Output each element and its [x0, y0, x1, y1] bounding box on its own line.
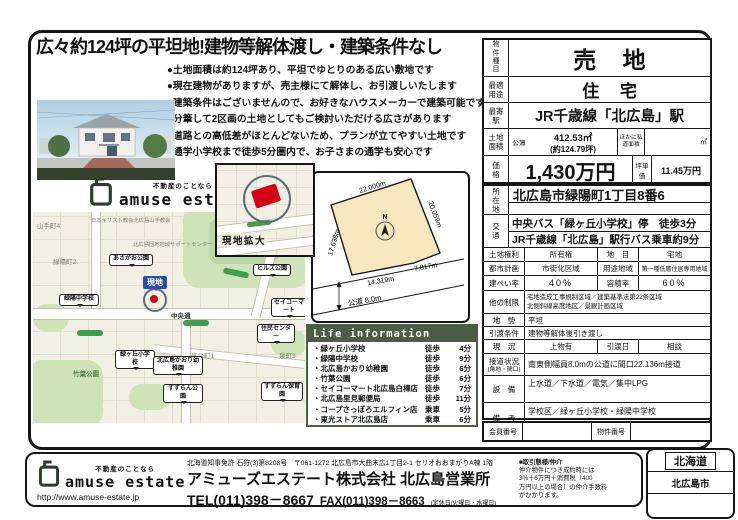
- bullet-item: ●道路との高低差がほとんどないため、プランが立てやすい土地です: [167, 129, 479, 145]
- row-value: 40%: [525, 276, 598, 290]
- row-label: 都市計画: [484, 262, 525, 275]
- amuse-logo-footer: 不動産のことなら amuse estate: [37, 460, 185, 493]
- life-row: ・北広島かおり幼稚園徒歩6分: [313, 364, 471, 374]
- address-line2-empty: [509, 203, 710, 214]
- map-poi-label: 北広島団地地域サポートセンター: [133, 240, 212, 248]
- row-label: 容積率: [598, 276, 639, 290]
- row-label: 建ぺい率: [484, 276, 525, 290]
- row-value: 宅地: [639, 248, 710, 261]
- life-mode: 徒歩: [425, 384, 447, 394]
- row-value: 上水道／下水道／電気／集中LPG: [525, 376, 710, 402]
- life-mode: 徒歩: [425, 394, 447, 404]
- north-label: N: [382, 214, 387, 221]
- holiday-note: (定休日/火曜日・水曜日): [431, 498, 497, 507]
- map-balloon-suzuran-park: すずらん公園: [163, 384, 203, 403]
- area-value: 412.53㎡: [554, 130, 593, 144]
- area-values: 412.53㎡ (約124.79坪): [529, 129, 618, 155]
- life-row: ・緑陽中学校徒歩9分: [313, 354, 471, 364]
- life-time: 6分: [447, 374, 471, 384]
- type-value: 売 地: [509, 40, 710, 76]
- region-pref: 北海道: [665, 452, 716, 470]
- frontage-label: 接道状況: [489, 356, 519, 367]
- row-label: 現 況: [484, 340, 525, 353]
- row-value: 南東側幅員8.0mの公道に間口22.136m接道: [525, 354, 710, 375]
- map-road-chuo: [33, 308, 305, 320]
- life-time: 9分: [447, 354, 471, 364]
- spec-row-address: 所在地 北広島市緑陽町1丁目8番6: [484, 186, 710, 215]
- spec-row-area: 土地面積 公簿 412.53㎡ (約124.79坪) ほかに私道面積 ㎡: [484, 129, 710, 156]
- station-value: JR千歳線「北広島」駅: [509, 103, 710, 128]
- spec-row-access: 交通 中央バス「緑ヶ丘小学校」停 徒歩3分 JR千歳線「北広島」駅行バス乗車約9…: [484, 215, 710, 248]
- dim-left: 17.638m: [327, 228, 342, 256]
- flyer-page: 広々約124坪の平坦地!建物等解体渡し・建築条件なし ●土地面積は約124坪あり…: [0, 0, 738, 520]
- spec-row-type: 物件種目 売 地: [484, 40, 710, 77]
- unit-price-value: 11.45万円: [652, 156, 710, 184]
- row-value: 相談: [639, 340, 710, 353]
- address-value: 北広島市緑陽町1丁目8番6: [509, 186, 710, 203]
- logo-name: amuse estate: [65, 473, 185, 491]
- spec-table-numbers: 会員番号 物件番号: [482, 421, 712, 442]
- logo-url: http://www.amuse-estate.jp: [37, 492, 139, 502]
- spec-label: 最寄駅: [484, 103, 509, 128]
- life-name: ・北広島かおり幼稚園: [313, 364, 425, 374]
- area-other-label: ほかに私道面積: [618, 129, 645, 155]
- headline: 広々約124坪の平坦地!建物等解体渡し・建築条件なし: [36, 33, 482, 59]
- unit-price-label: 坪単価: [632, 156, 652, 184]
- map-balloon-site: 現地: [143, 276, 167, 289]
- property-no-label: 物件番号: [592, 423, 631, 440]
- life-information-rows: ・緑ヶ丘小学校徒歩4分 ・緑陽中学校徒歩9分 ・北広島かおり幼稚園徒歩6分 ・竹…: [308, 342, 476, 425]
- spec-label: 物件種目: [484, 40, 509, 76]
- site-inset-map: 現地拡大: [215, 163, 315, 257]
- row-label: 引渡条件: [484, 327, 525, 339]
- footer-company-block: 北海道知事免許 石狩(3)第8208号 〒061-1272 北広島市大曲末広1丁…: [187, 457, 517, 510]
- map-poi-label: 日本キリスト教会北広島山手教会: [91, 216, 170, 224]
- row-label: 他の制限: [484, 291, 525, 313]
- map-park-label: 竹葉公園: [73, 368, 99, 378]
- life-mode: 徒歩: [425, 344, 447, 354]
- route-badge: [77, 330, 103, 336]
- company-name: アミューズエステート株式会社 北広島営業所: [187, 468, 517, 489]
- use-label: 最適用途: [488, 81, 505, 99]
- life-time: 7分: [447, 384, 471, 394]
- frontage-sublabel: (角地・間口): [488, 367, 521, 374]
- restrictions-values: 宅地造成工事規制区域／建築基準法第22条区域 北側斜線高度地区／景観計画区域: [525, 291, 710, 313]
- license-line: 北海道知事免許 石狩(3)第8208号 〒061-1272 北広島市大曲末広1丁…: [187, 457, 517, 467]
- area-label: 土地面積: [488, 133, 505, 151]
- access-values: 中央バス「緑ヶ丘小学校」停 徒歩3分 JR千歳線「北広島」駅行バス乗車約9分: [509, 215, 710, 247]
- bullet-item: ●土地面積は約124坪あり、平坦でゆとりのある広い敷地です: [167, 63, 479, 79]
- life-mode: 徒歩: [425, 374, 447, 384]
- life-row: ・コープさっぽろエルフィン店乗車5分: [313, 405, 471, 415]
- life-name: ・竹葉公園: [313, 374, 425, 384]
- row-value: 市街化区域: [525, 262, 598, 275]
- property-no-value-empty: [631, 423, 710, 440]
- notice-line: がかかります。: [519, 492, 635, 500]
- row-value: 上物有: [525, 340, 598, 353]
- spec-label: 価格: [484, 156, 509, 184]
- row-label: 引渡日: [598, 340, 639, 353]
- footer-bar: 不動産のことなら amuse estate http://www.amuse-e…: [25, 452, 643, 507]
- life-mode: 乗車: [425, 405, 447, 415]
- area-other-unit: ㎡: [645, 129, 710, 155]
- bullet-item: ●分筆して2区画の土地としてもご検討いただける広さがあります: [167, 112, 479, 128]
- map-balloon-hills-park: ヒルズ公園: [253, 264, 291, 276]
- life-name: ・緑ヶ丘小学校: [313, 344, 425, 354]
- life-row: ・竹葉公園徒歩6分: [313, 374, 471, 384]
- price-label: 価格: [492, 161, 501, 179]
- area-register-label: 公簿: [509, 129, 529, 155]
- region-pref-cell: 北海道: [648, 450, 733, 472]
- row-value: 平坦: [525, 314, 710, 326]
- row-label: 地 勢: [484, 314, 525, 326]
- life-name: ・コープさっぽろエルフィン店: [313, 405, 425, 415]
- row-value: 建物等解体後引き渡し: [525, 327, 710, 339]
- site-marker-dot: [150, 295, 158, 303]
- map-area-label: 泉町3: [279, 350, 296, 360]
- life-time: 5分: [447, 405, 471, 415]
- life-mode: 徒歩: [425, 354, 447, 364]
- spec-row-use: 最適用途 住 宅: [484, 77, 710, 103]
- spec-row-terrain: 地 勢 平坦: [484, 314, 710, 327]
- spec-row-coverage: 建ぺい率 40% 容積率 60%: [484, 276, 710, 291]
- spec-label: 最適用途: [484, 77, 509, 102]
- map-balloon-kaori-kindergarten: 北広島かおり幼稚園: [153, 356, 203, 375]
- property-photo: [37, 100, 175, 180]
- notice-title: ■取引態様/仲介: [519, 459, 635, 467]
- row-value: 60%: [639, 276, 710, 290]
- access-line1: 中央バス「緑ヶ丘小学校」停 徒歩3分: [509, 215, 710, 232]
- fax-number: FAX(011)398－8663: [320, 493, 425, 509]
- row-value: 第一種低層住居専用地域: [639, 262, 710, 275]
- bullet-item: ●現在建物がありますが、売主様にて解体し、お引渡しいたします: [167, 79, 479, 95]
- row-label: 用途地域: [598, 262, 639, 275]
- life-information-box: Life information ・緑ヶ丘小学校徒歩4分 ・緑陽中学校徒歩9分 …: [306, 324, 478, 427]
- life-row: ・北広島里見郵便局徒歩11分: [313, 394, 471, 404]
- dim-bottom-right: 7.817m: [414, 262, 438, 273]
- bullet-list: ●土地面積は約124坪あり、平坦でゆとりのある広い敷地です ●現在建物があります…: [167, 63, 479, 161]
- life-row: ・セイコーマート北広島白樺店徒歩7分: [313, 384, 471, 394]
- spec-row-road-frontage: 接道状況 (角地・間口) 南東側幅員8.0mの公道に間口22.136m接道: [484, 354, 710, 376]
- bullet-item: ●通学小学校まで徒歩5分圏内で、お子さまの通学も安心です: [167, 145, 479, 161]
- map-balloon-suzuran-nursery: すずらん保育園: [261, 382, 303, 401]
- tel-number: TEL(011)398－8667: [187, 490, 314, 510]
- site-plan: N 22.000m 20.059m 17.638m 14.319m 7.817m…: [311, 171, 470, 323]
- life-row: ・緑ヶ丘小学校徒歩4分: [313, 344, 471, 354]
- life-mode: 乗車: [425, 415, 447, 425]
- map-balloon-midorigaoka-es: 緑ヶ丘小学校: [115, 350, 155, 369]
- map-balloon-seicomart: セイコーマート: [271, 298, 305, 317]
- amuse-house-icon: [37, 460, 61, 493]
- life-name: ・緑陽中学校: [313, 354, 425, 364]
- member-no-value-empty: [523, 423, 592, 440]
- life-time: 4分: [447, 344, 471, 354]
- row-label: 設 備: [484, 376, 525, 402]
- logo-tagline: 不動産のことなら: [65, 463, 185, 473]
- access-line2: JR千歳線「北広島」駅行バス乗車約9分: [509, 232, 710, 247]
- spec-label: 所在地: [484, 186, 509, 214]
- brokerage-notice: ■取引態様/仲介 仲介物件につき成約時には 3%＋6万円＋消費税（400 万円以…: [519, 459, 635, 500]
- life-name: ・セイコーマート北広島白樺店: [313, 384, 425, 394]
- row-label: 地 目: [598, 248, 639, 261]
- spec-row-current-state: 現 況 上物有 引渡日 相談: [484, 340, 710, 354]
- region-empty-cell: [648, 494, 733, 515]
- life-row: ・東光ストア北広島店乗車6分: [313, 415, 471, 425]
- inset-label: 現地拡大: [221, 233, 267, 247]
- spec-table-top: 物件種目 売 地 最適用途 住 宅 最寄駅 JR千歳線「北広島」駅 土地面積 公…: [482, 38, 712, 184]
- life-information-title: Life information: [308, 326, 476, 342]
- life-name: ・東光ストア北広島店: [313, 415, 425, 425]
- life-time: 11分: [447, 394, 471, 404]
- type-label: 物件種目: [492, 41, 501, 75]
- map-area-label: 山手町4: [37, 220, 60, 230]
- row-label: 土地権利: [484, 248, 525, 261]
- map-balloon-community-center: 住民センター: [257, 324, 295, 343]
- spec-row-price: 価格 1,430万円 坪単価 11.45万円: [484, 156, 710, 184]
- member-no-label: 会員番号: [484, 423, 523, 440]
- life-time: 6分: [447, 364, 471, 374]
- notice-line: 3%＋6万円＋消費税（400: [519, 475, 635, 483]
- price-value: 1,430万円: [509, 156, 632, 184]
- bullet-item: ●建築条件はございませんので、お好きなハウスメーカーで建築可能です: [167, 96, 479, 112]
- spec-table-detail: 所在地 北広島市緑陽町1丁目8番6 交通 中央バス「緑ヶ丘小学校」停 徒歩3分 …: [482, 184, 712, 420]
- area-tsubo: (約124.79坪): [550, 144, 596, 155]
- notice-line: 万円以上の場合）の仲介手数料: [519, 484, 635, 492]
- region-city: 北広島市: [648, 472, 733, 494]
- address-values: 北広島市緑陽町1丁目8番6: [509, 186, 710, 214]
- contact-line: TEL(011)398－8667 FAX(011)398－8663 (定休日/火…: [187, 490, 517, 510]
- spec-row-utilities: 設 備 上水道／下水道／電気／集中LPG: [484, 376, 710, 403]
- spec-row-restrictions: 他の制限 宅地造成工事規制区域／建築基準法第22条区域 北側斜線高度地区／景観計…: [484, 291, 710, 314]
- spec-row-handover-cond: 引渡条件 建物等解体後引き渡し: [484, 327, 710, 340]
- life-name: ・北広島里見郵便局: [313, 394, 425, 404]
- station-label: 最寄駅: [488, 107, 505, 125]
- access-label: 交通: [492, 222, 501, 240]
- row-value: 宅地造成工事規制区域／建築基準法第22条区域: [527, 293, 710, 302]
- spec-row-rights: 土地権利 所有権 地 目 宅地: [484, 248, 710, 262]
- region-box: 北海道 北広島市: [646, 448, 735, 519]
- map-road-label: 中央通: [171, 310, 191, 320]
- row-value: 所有権: [525, 248, 598, 261]
- map-balloon-asagao-park: あさがお公園: [109, 254, 153, 266]
- spec-row-city-plan: 都市計画 市街化区域 用途地域 第一種低層住居専用地域: [484, 262, 710, 276]
- use-value: 住 宅: [509, 77, 710, 102]
- spec-row-station: 最寄駅 JR千歳線「北広島」駅: [484, 103, 710, 129]
- map-area-label: 緑陽町2: [53, 256, 76, 266]
- spec-label: 土地面積: [484, 129, 509, 155]
- row-value: 北側斜線高度地区／景観計画区域: [527, 302, 710, 311]
- road-width-label: 公道 8.0m: [347, 292, 382, 308]
- amuse-house-icon: [88, 177, 114, 212]
- life-mode: 徒歩: [425, 364, 447, 374]
- spec-label: 交通: [484, 215, 509, 247]
- route-badge: [183, 320, 209, 326]
- row-label: 接道状況 (角地・間口): [484, 354, 525, 375]
- life-time: 6分: [447, 415, 471, 425]
- map-balloon-ryokuyo-jhs: 緑陽中学校: [59, 294, 99, 306]
- address-label: 所在地: [492, 187, 501, 214]
